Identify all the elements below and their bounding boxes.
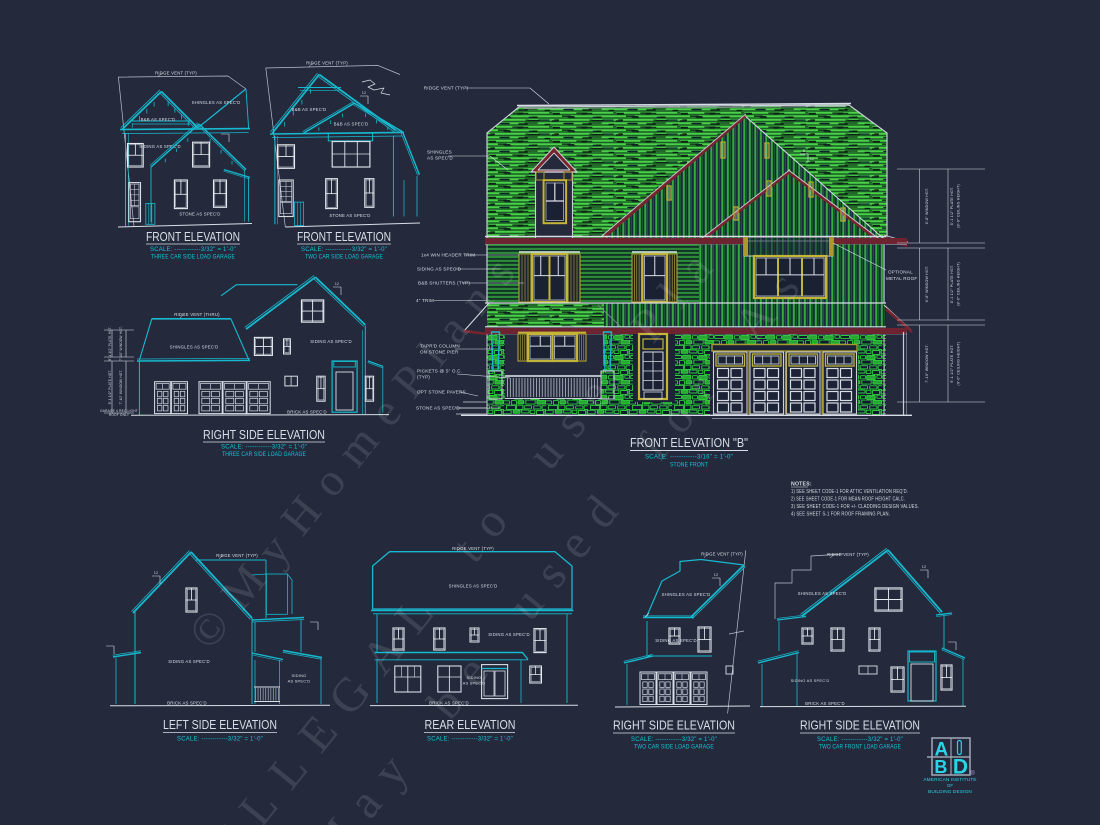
svg-text:SIDING AS SPEC'D: SIDING AS SPEC'D [655,638,697,643]
svg-text:RIDGE VENT (TYP): RIDGE VENT (TYP) [155,71,197,76]
svg-text:1) SEE SHEET CODE-1 FOR ATTIC: 1) SEE SHEET CODE-1 FOR ATTIC VENTILATIO… [791,489,908,495]
svg-text:TWO CAR SIDE LOAD GARAGE: TWO CAR SIDE LOAD GARAGE [634,745,714,751]
svg-text:TWO CAR SIDE LOAD GARAGE: TWO CAR SIDE LOAD GARAGE [305,255,383,261]
svg-text:12: 12 [922,565,926,569]
svg-text:(9'-0" CEILING HEIGHT): (9'-0" CEILING HEIGHT) [957,342,961,386]
svg-text:SCALE: ------------3/32" = 1'-: SCALE: ------------3/32" = 1'-0" [221,445,307,451]
svg-text:SIDING AS SPEC'D: SIDING AS SPEC'D [417,267,462,272]
svg-text:®: ® [970,770,975,777]
svg-text:8: 8 [803,149,805,153]
svg-text:LEFT SIDE ELEVATION: LEFT SIDE ELEVATION [163,718,277,732]
svg-text:B&B AS SPEC'D: B&B AS SPEC'D [334,122,369,127]
svg-text:THREE CAR SIDE LOAD GARAGE: THREE CAR SIDE LOAD GARAGE [222,452,306,458]
svg-text:SHINGLES AS SPEC'D: SHINGLES AS SPEC'D [798,591,847,596]
svg-text:BRICK AS SPEC'D: BRICK AS SPEC'D [287,410,327,415]
svg-text:7'-10" WINDOW HGT.: 7'-10" WINDOW HGT. [119,370,123,405]
svg-text:B&B AS SPEC'D: B&B AS SPEC'D [141,117,176,122]
svg-text:8'-1 1/2" PLATE HGT.: 8'-1 1/2" PLATE HGT. [950,187,954,225]
svg-text:TWO CAR FRONT LOAD GARAGE: TWO CAR FRONT LOAD GARAGE [819,745,901,751]
svg-text:BUILDING DESIGN: BUILDING DESIGN [928,789,972,795]
svg-text:SIDING AS SPEC'D: SIDING AS SPEC'D [310,339,352,344]
svg-text:SCALE: ------------3/32" = 1'-: SCALE: ------------3/32" = 1'-0" [817,737,903,743]
svg-text:6'-8" WINDOW HGT.: 6'-8" WINDOW HGT. [925,188,929,225]
svg-text:SIDING AS SPEC'D: SIDING AS SPEC'D [791,678,830,683]
svg-text:SCALE: ------------3/32" = 1'-: SCALE: ------------3/32" = 1'-0" [301,247,387,253]
svg-text:SCALE: ------------3/32" = 1'-: SCALE: ------------3/32" = 1'-0" [177,737,263,743]
svg-text:RIDGE VENT (TYP): RIDGE VENT (TYP) [306,61,348,66]
svg-text:D: D [953,756,968,779]
svg-text:12: 12 [335,282,339,286]
svg-text:SIDING AS SPEC'D: SIDING AS SPEC'D [168,659,210,664]
svg-text:OPTIONAL: OPTIONAL [888,270,913,275]
svg-text:8'-1 1/2" PLATE HGT.: 8'-1 1/2" PLATE HGT. [108,326,112,361]
svg-text:STONE AS SPEC'D: STONE AS SPEC'D [179,212,220,217]
svg-text:RIDGE VENT (TYP): RIDGE VENT (TYP) [424,86,469,91]
svg-text:FRONT ELEVATION: FRONT ELEVATION [297,230,391,244]
svg-text:12: 12 [154,571,158,575]
svg-text:SCALE: ------------3/32" = 1'-: SCALE: ------------3/32" = 1'-0" [150,247,236,253]
svg-text:NOTES:: NOTES: [791,482,812,488]
svg-text:B&B AS SPEC'D: B&B AS SPEC'D [292,107,327,112]
svg-text:8'-1 1/2" PLATE HGT.: 8'-1 1/2" PLATE HGT. [950,265,954,303]
svg-text:SHINGLES AS SPEC'D: SHINGLES AS SPEC'D [170,345,219,350]
svg-text:STONE AS SPEC'D: STONE AS SPEC'D [416,406,460,411]
svg-text:4) SEE SHEET S-1 FOR ROOF FRA: 4) SEE SHEET S-1 FOR ROOF FRAMING PLAN. [791,512,890,518]
svg-text:SIDING: SIDING [292,673,307,678]
svg-text:B: B [934,757,947,777]
svg-text:2) SEE SHEET CODE-1 FOR MEAN: 2) SEE SHEET CODE-1 FOR MEAN ROOF HEIGHT… [791,497,905,503]
svg-text:STONE FRONT: STONE FRONT [670,463,708,469]
svg-text:AS SPEC'D: AS SPEC'D [288,679,311,684]
svg-text:RIDGE VENT (TYP): RIDGE VENT (TYP) [827,552,869,557]
svg-text:6'-8" WINDOW HGT.: 6'-8" WINDOW HGT. [925,266,929,303]
svg-text:(8'-0" CEILING HEIGHT): (8'-0" CEILING HEIGHT) [957,184,961,228]
svg-text:RIGHT SIDE ELEVATION: RIGHT SIDE ELEVATION [203,428,325,442]
svg-text:7'-10" WINDOW HGT.: 7'-10" WINDOW HGT. [925,344,929,383]
svg-text:THREE CAR SIDE LOAD GARAGE: THREE CAR SIDE LOAD GARAGE [151,255,235,261]
svg-text:9'-1 1/2" PLATE HGT.: 9'-1 1/2" PLATE HGT. [950,344,954,382]
svg-text:BRICK AS SPEC'D: BRICK AS SPEC'D [805,701,845,706]
svg-text:OF: OF [947,783,954,788]
svg-text:RIGHT SIDE ELEVATION: RIGHT SIDE ELEVATION [613,719,735,733]
svg-text:SCALE: ------------3/32" = 1'-: SCALE: ------------3/32" = 1'-0" [631,737,717,743]
svg-text:3) SEE SHEET CODE-1 FOR +/- C: 3) SEE SHEET CODE-1 FOR +/- CLADDING DES… [791,504,919,510]
svg-text:12: 12 [362,91,366,95]
svg-text:ROOF ONLY: ROOF ONLY [109,413,130,417]
svg-text:4" TRIM: 4" TRIM [416,298,434,303]
svg-text:12: 12 [810,157,815,161]
svg-text:(8'-0" CEILING HEIGHT): (8'-0" CEILING HEIGHT) [957,262,961,306]
svg-text:METAL ROOF: METAL ROOF [886,276,917,281]
svg-text:RIDGE VENT (TYP): RIDGE VENT (TYP) [701,552,743,557]
svg-text:BRICK AS SPEC'D: BRICK AS SPEC'D [167,701,207,706]
svg-text:FRONT ELEVATION: FRONT ELEVATION [146,230,240,244]
svg-text:SHINGLES AS SPEC'D: SHINGLES AS SPEC'D [662,592,711,597]
svg-text:STONE AS SPEC'D: STONE AS SPEC'D [329,213,370,218]
svg-text:RIDGE VENT (THRU): RIDGE VENT (THRU) [174,312,220,317]
svg-text:8'-1 1/2" PLATE HGT.: 8'-1 1/2" PLATE HGT. [108,370,112,405]
svg-text:SHINGLES AS SPEC'D: SHINGLES AS SPEC'D [192,100,241,105]
svg-text:7'-10" WINDOW HGT.: 7'-10" WINDOW HGT. [119,326,123,361]
svg-text:12: 12 [714,573,718,577]
svg-text:SHINGLES: SHINGLES [427,150,452,155]
svg-text:RIGHT SIDE ELEVATION: RIGHT SIDE ELEVATION [800,719,920,733]
